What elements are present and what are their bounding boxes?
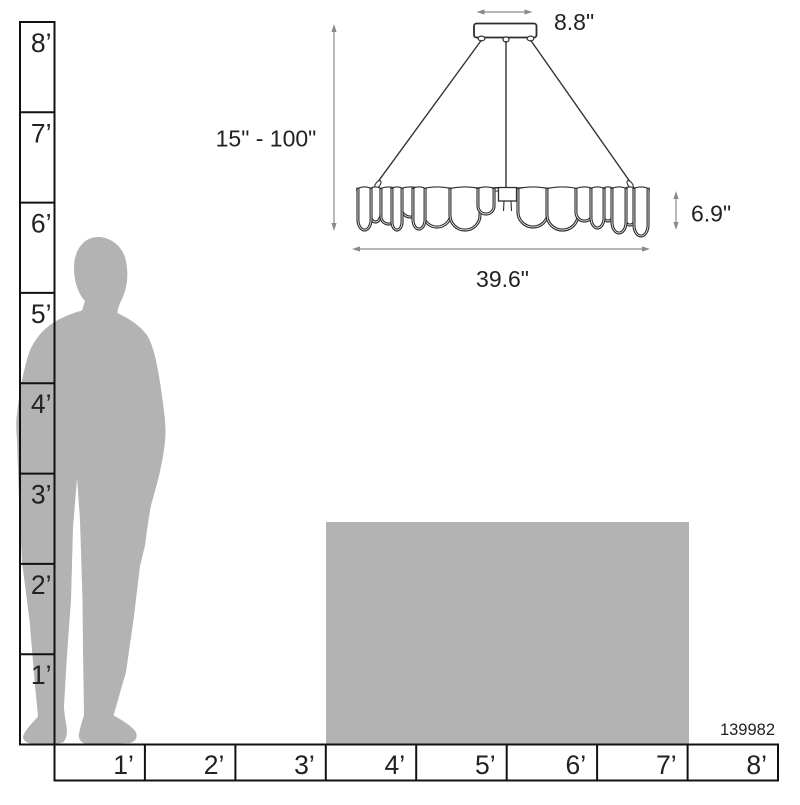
svg-text:2’: 2’ [31,570,52,600]
svg-text:1’: 1’ [31,660,52,690]
svg-text:7’: 7’ [656,750,677,780]
svg-text:4’: 4’ [385,750,406,780]
svg-text:15" - 100": 15" - 100" [216,126,317,152]
svg-text:8’: 8’ [31,28,52,58]
svg-text:2’: 2’ [204,750,225,780]
svg-text:7’: 7’ [31,118,52,148]
svg-text:5’: 5’ [475,750,496,780]
svg-text:3’: 3’ [294,750,315,780]
svg-text:1’: 1’ [113,750,134,780]
svg-text:139982: 139982 [720,721,775,739]
svg-text:5’: 5’ [31,299,52,329]
svg-text:4’: 4’ [31,389,52,419]
svg-text:8.8": 8.8" [554,9,594,35]
svg-text:8’: 8’ [746,750,767,780]
svg-text:6’: 6’ [31,209,52,239]
svg-text:39.6": 39.6" [476,266,529,292]
svg-text:6.9": 6.9" [691,201,731,227]
svg-text:6’: 6’ [565,750,586,780]
svg-text:3’: 3’ [31,480,52,510]
